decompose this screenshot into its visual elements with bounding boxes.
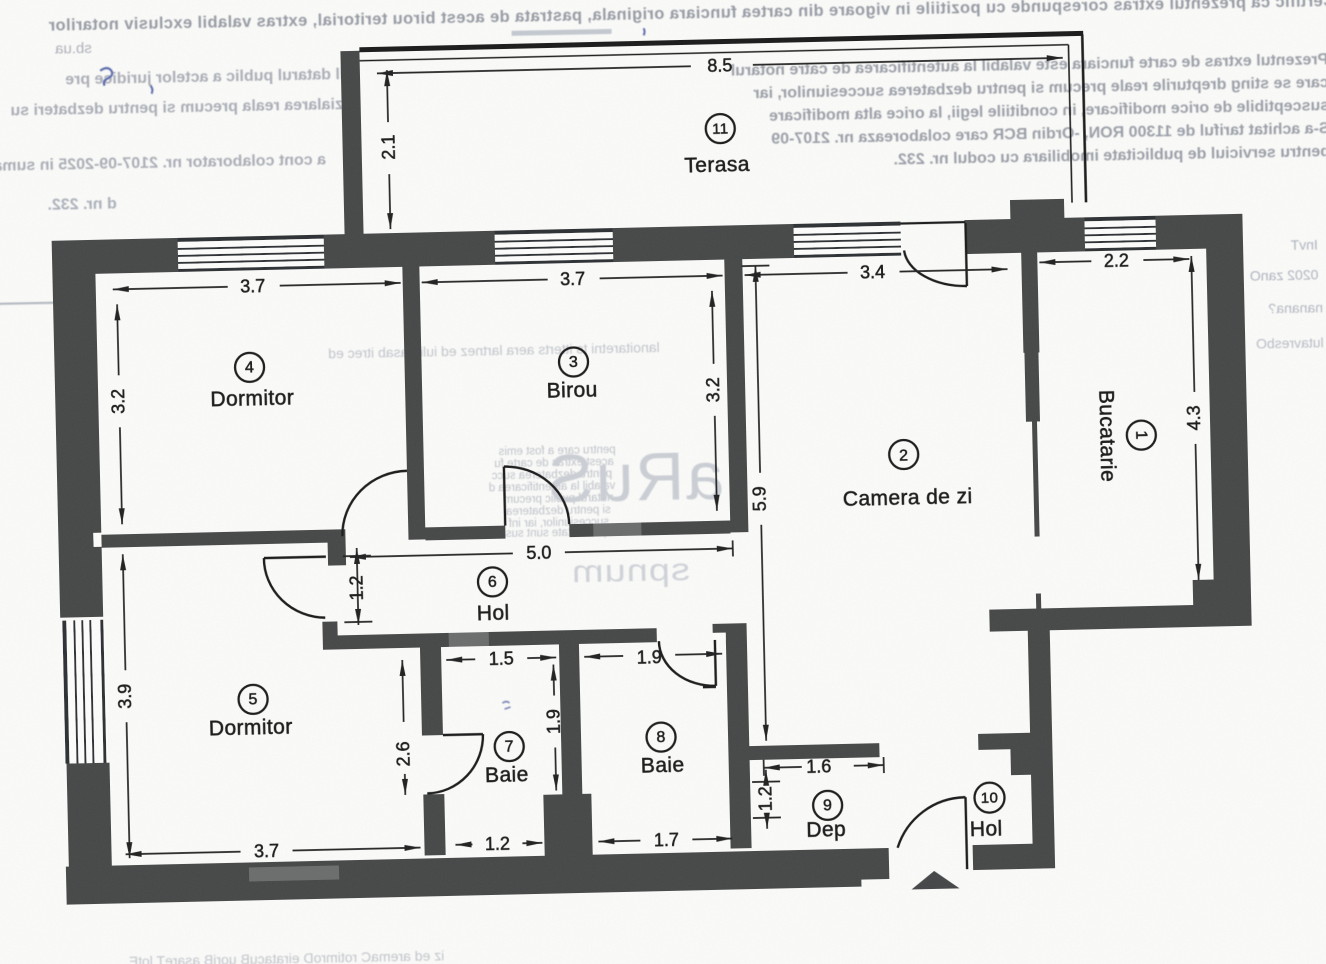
svg-text:Bucatarie: Bucatarie	[1094, 390, 1119, 483]
svg-text:1.7: 1.7	[654, 830, 679, 851]
svg-text:1.2: 1.2	[346, 575, 367, 600]
svg-text:il datarul public a actelor j: il datarul public a actelor juridice pre	[65, 66, 345, 88]
svg-text:3.2: 3.2	[703, 377, 724, 402]
svg-text:Birou: Birou	[546, 378, 598, 402]
svg-text:9: 9	[823, 797, 833, 814]
svg-text:2.1: 2.1	[378, 134, 399, 159]
svg-text:3.7: 3.7	[240, 276, 265, 297]
svg-text:1.6: 1.6	[806, 756, 831, 777]
svg-text:3.7: 3.7	[254, 841, 279, 862]
svg-text:3.7: 3.7	[560, 269, 585, 290]
svg-text:spnum: spnum	[571, 553, 691, 589]
svg-text:2.2: 2.2	[1104, 250, 1129, 271]
svg-text:3: 3	[569, 354, 579, 371]
svg-text:Hol: Hol	[970, 817, 1003, 841]
svg-text:4: 4	[245, 359, 255, 376]
svg-text:Camera de zi: Camera de zi	[843, 485, 973, 511]
svg-text:Baie: Baie	[485, 763, 529, 787]
svg-text:3.4: 3.4	[860, 262, 885, 283]
svg-text:sb.ua: sb.ua	[54, 40, 92, 58]
svg-text:Hol: Hol	[477, 602, 510, 626]
svg-text:3.2: 3.2	[108, 389, 129, 414]
svg-text:1.2: 1.2	[485, 834, 510, 855]
svg-text:Dormitor: Dormitor	[210, 386, 294, 411]
svg-text:lutavresbO: lutavresbO	[1256, 334, 1324, 351]
svg-text:Certific ca prezentul extras c: Certific ca prezentul extras corespunde …	[48, 0, 1326, 35]
svg-text:InvT: InvT	[1290, 236, 1318, 253]
svg-text:2: 2	[899, 447, 909, 464]
svg-text:1.9: 1.9	[543, 709, 564, 734]
svg-text:S-a achitat tariful de 11300 R: S-a achitat tariful de 11300 RON, -Ordin…	[771, 120, 1326, 148]
svg-text:5.9: 5.9	[749, 486, 770, 511]
svg-text:8: 8	[656, 729, 666, 746]
svg-text:8.5: 8.5	[707, 55, 732, 76]
svg-text:6: 6	[488, 574, 498, 591]
svg-text:d nr. 232.: d nr. 232.	[47, 195, 117, 213]
svg-text:5.0: 5.0	[526, 543, 551, 564]
svg-text:Dormitor: Dormitor	[209, 715, 293, 740]
svg-text:1: 1	[1132, 430, 1149, 440]
svg-text:1.5: 1.5	[489, 648, 514, 669]
svg-text:3.9: 3.9	[115, 684, 136, 709]
svg-text:Terasa: Terasa	[684, 153, 750, 177]
svg-text:lanoitaretni ts itterts aera: lanoitaretni ts itterts aera lartnez ed …	[328, 339, 660, 361]
svg-text:susceptibile de orice modifica: susceptibile de orice modificare, in con…	[769, 97, 1326, 125]
svg-text:zialarea reala precum si pentr: zialarea reala precum si pentru dezbater…	[10, 96, 343, 119]
svg-text:4.3: 4.3	[1184, 405, 1205, 430]
svg-text:5: 5	[248, 691, 258, 708]
svg-text:0202 zanO: 0202 zanO	[1250, 266, 1319, 283]
svg-text:Dep: Dep	[806, 818, 846, 842]
svg-text:aRuS: aRuS	[545, 438, 725, 517]
svg-text:nanana?: nanana?	[1268, 299, 1323, 316]
svg-text:1.2: 1.2	[755, 786, 776, 811]
svg-text:10: 10	[981, 789, 999, 806]
svg-text:2.6: 2.6	[393, 741, 414, 766]
svg-text:a cont colaborator nr. 2107-09: a cont colaborator nr. 2107-09-2025 in s…	[0, 151, 326, 175]
svg-text:iz ed aremaC rotimroD eirata: iz ed aremaC rotimroD eiratacuB uoriB as…	[129, 947, 445, 964]
svg-text:11: 11	[712, 120, 729, 137]
svg-text:Baie: Baie	[641, 754, 685, 778]
svg-text:1.9: 1.9	[637, 647, 662, 668]
svg-text:pentru serviciul de publicitat: pentru serviciul de publicitate imobilia…	[893, 143, 1326, 168]
svg-text:7: 7	[504, 738, 514, 755]
